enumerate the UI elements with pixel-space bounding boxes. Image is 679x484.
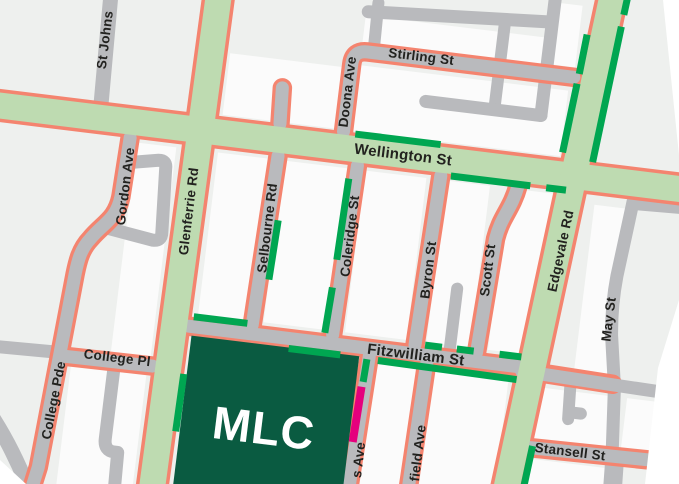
road-west-spur bbox=[0, 343, 52, 354]
map-viewport: St Johns Stirling St Doona Ave Wellingto… bbox=[0, 0, 679, 484]
road-fitzwilliam-stub bbox=[450, 289, 457, 349]
road-north-stub-1 bbox=[373, 3, 379, 47]
road-knob bbox=[569, 412, 581, 413]
map-graphic bbox=[0, 0, 679, 484]
map-canvas: St Johns Stirling St Doona Ave Wellingto… bbox=[0, 0, 679, 484]
